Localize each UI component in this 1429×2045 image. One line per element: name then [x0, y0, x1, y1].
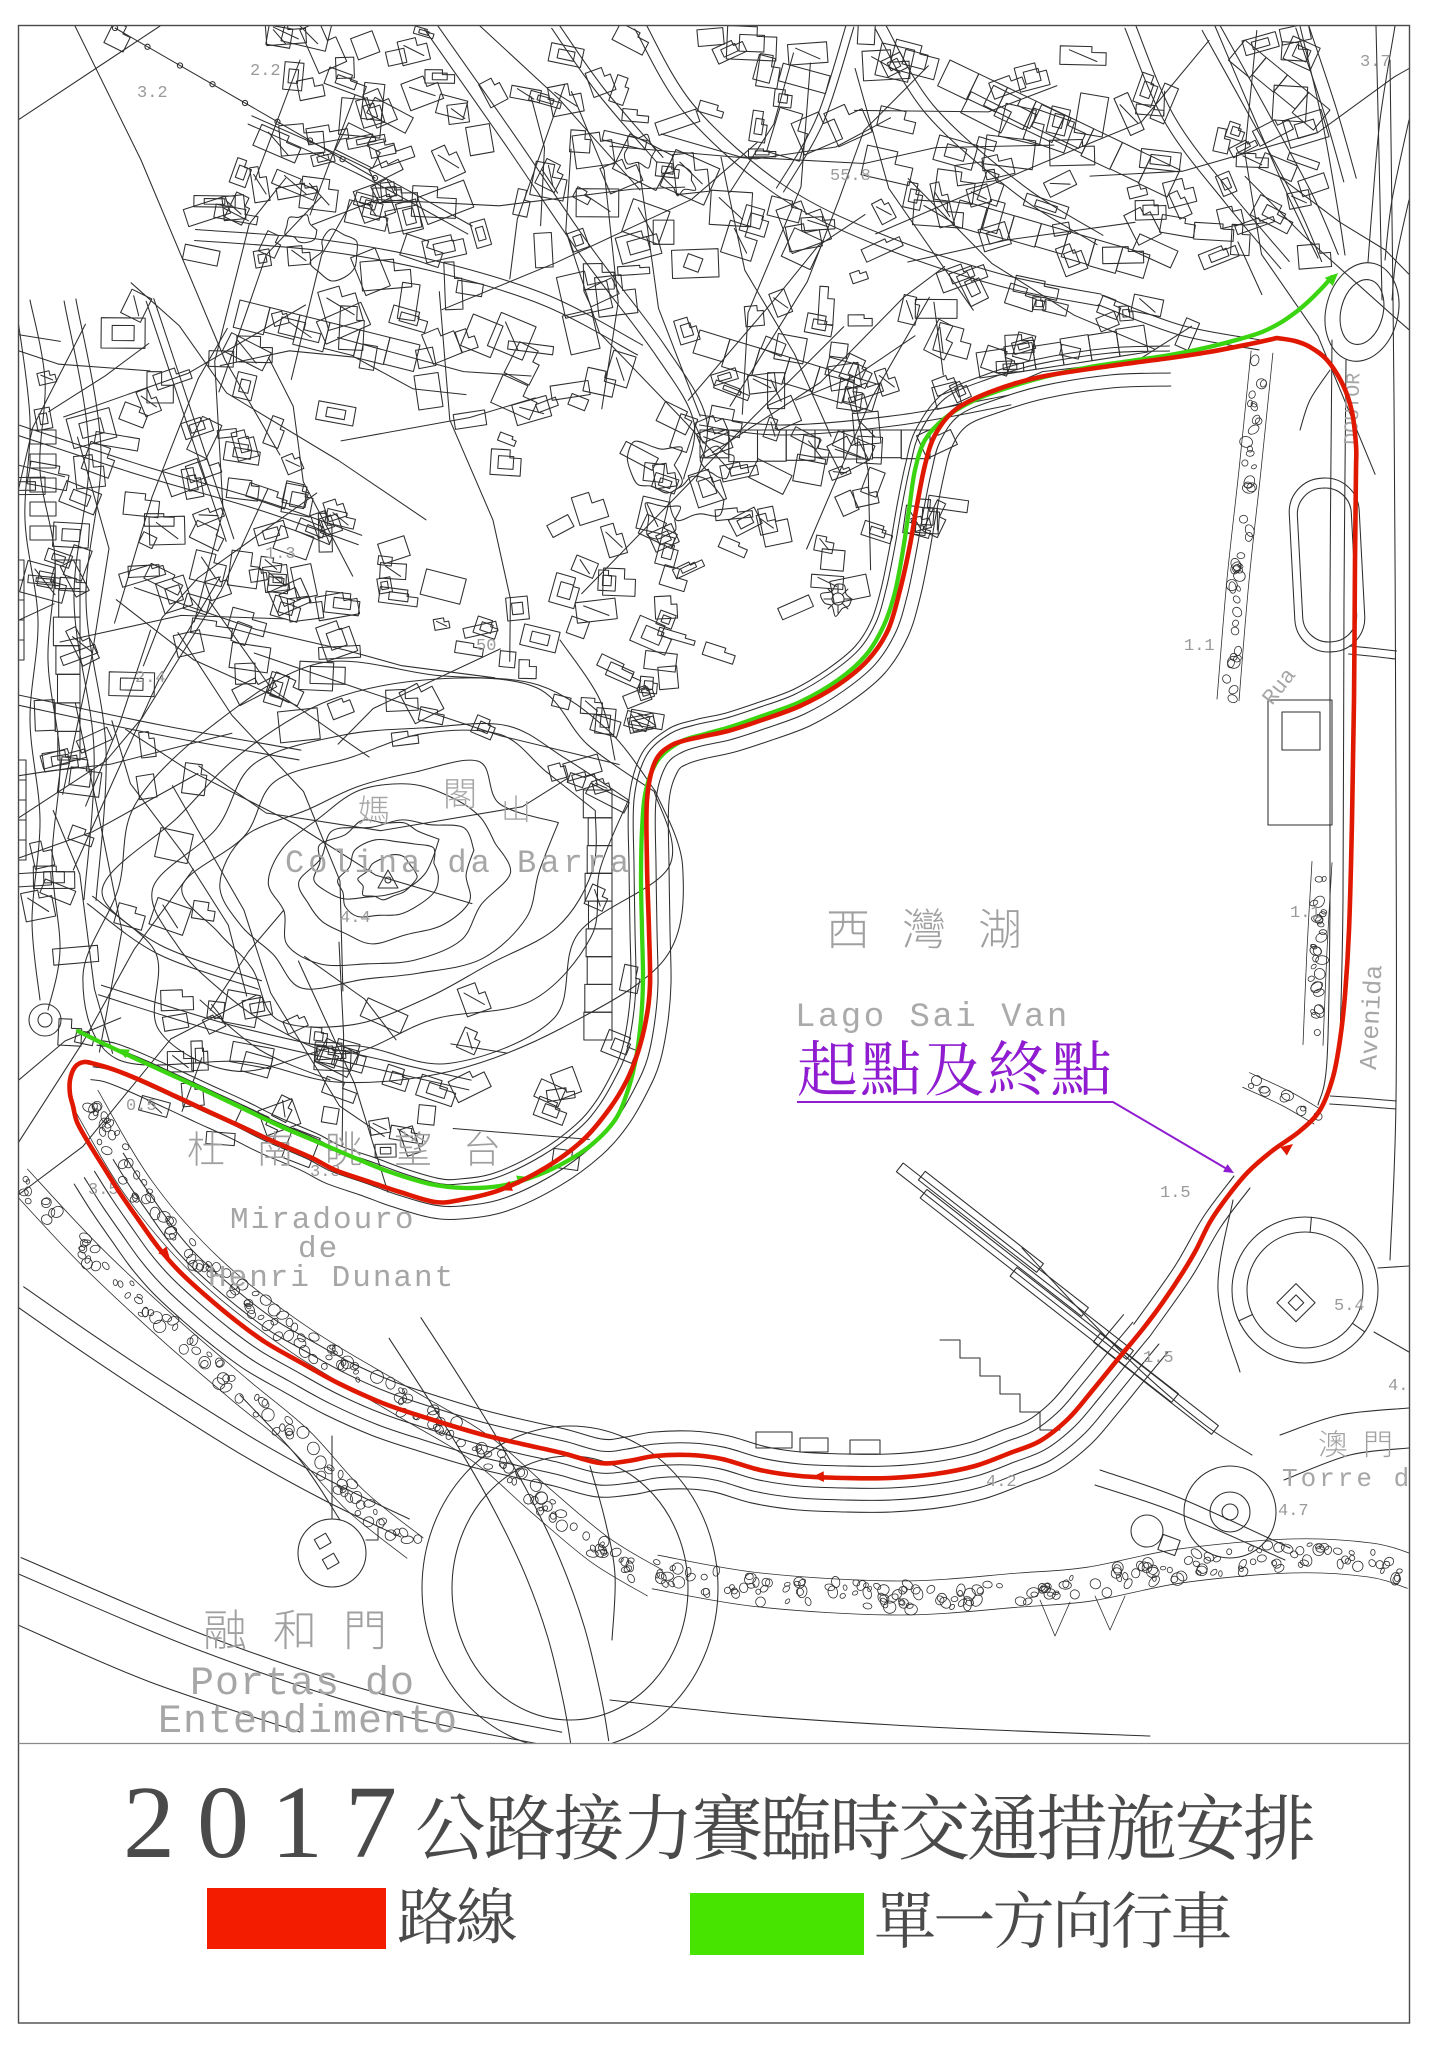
svg-text:Colina da Barra: Colina da Barra: [285, 845, 633, 882]
svg-text:3.2: 3.2: [137, 84, 168, 103]
svg-text:3.7: 3.7: [1360, 53, 1391, 72]
svg-text:Entendimento: Entendimento: [158, 1700, 458, 1745]
svg-text:4.4: 4.4: [340, 909, 371, 928]
svg-text:Lago Sai Van: Lago Sai Van: [795, 999, 1070, 1037]
svg-text:1.3: 1.3: [265, 545, 296, 564]
svg-text:55.8: 55.8: [830, 167, 871, 186]
svg-text:2.2: 2.2: [250, 62, 281, 81]
svg-text:4.7: 4.7: [1278, 1502, 1309, 1521]
svg-text:4.2: 4.2: [986, 1473, 1017, 1492]
svg-text:50: 50: [476, 637, 496, 656]
svg-text:Torre de: Torre de: [1282, 1464, 1429, 1494]
svg-text:5.4: 5.4: [1334, 1297, 1365, 1316]
svg-text:1.5: 1.5: [1160, 1184, 1191, 1203]
svg-text:2017: 2017: [123, 1765, 419, 1880]
svg-text:1.5: 1.5: [1143, 1349, 1174, 1368]
svg-text:Henri Dunant: Henri Dunant: [208, 1261, 455, 1296]
svg-text:2.4: 2.4: [135, 669, 166, 688]
svg-text:0.5: 0.5: [126, 1097, 157, 1116]
svg-text:1.1: 1.1: [1184, 637, 1215, 656]
svg-text:Avenida: Avenida: [1355, 964, 1389, 1070]
svg-text:1.1: 1.1: [1290, 904, 1321, 923]
